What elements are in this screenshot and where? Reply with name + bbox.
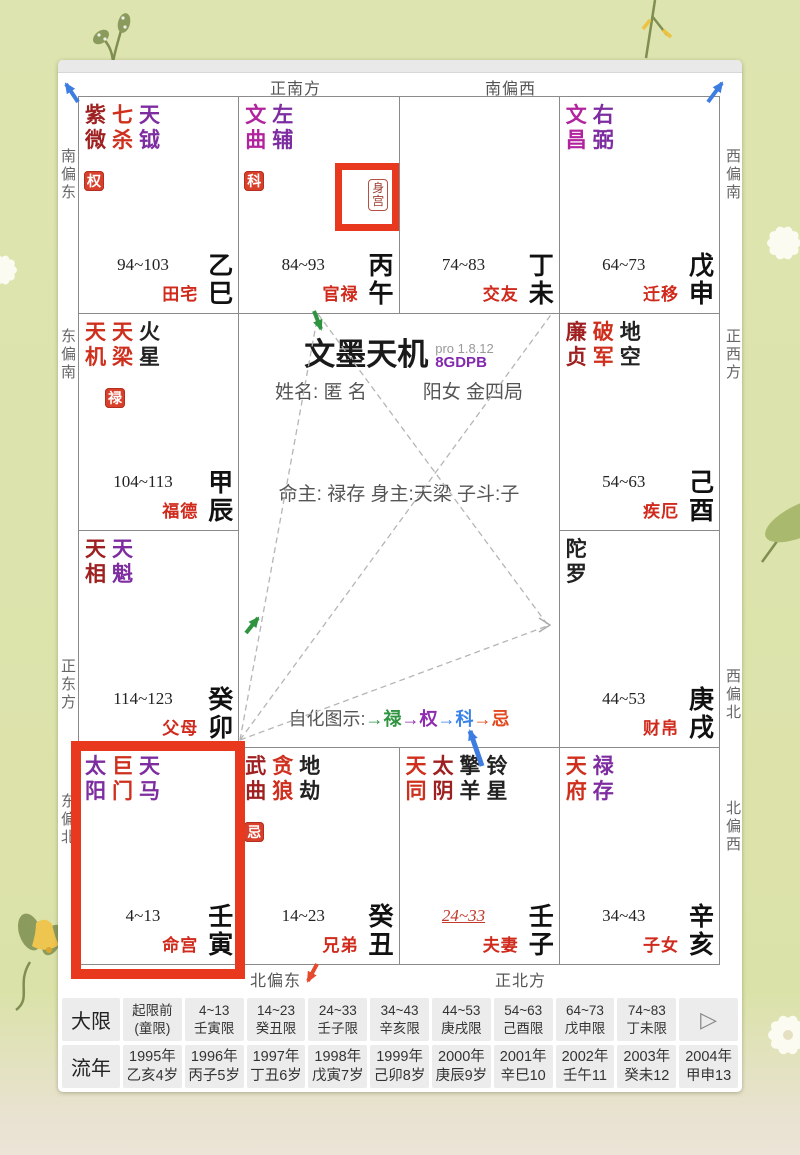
stem-branch: 壬寅	[208, 903, 233, 959]
star-list: 天相天魁	[84, 537, 134, 587]
table-cell[interactable]: 64~73戊申限	[556, 998, 615, 1041]
compass-left-2: 东偏南	[58, 328, 76, 382]
liunian-row: 流年 1995年乙亥4岁1996年丙子5岁1997年丁丑6岁1998年戊寅7岁1…	[62, 1045, 738, 1088]
palace-fude[interactable]: 天机天梁火星禄104~113甲辰福德	[79, 314, 238, 530]
arrow-red-down	[308, 964, 317, 981]
star-list: 天府禄存	[565, 754, 615, 804]
play-icon: ▷	[700, 1009, 717, 1031]
palace-name-label: 疾厄	[643, 497, 679, 522]
star-name: 天相	[84, 537, 107, 587]
table-cell[interactable]: 1999年己卯8岁	[370, 1045, 429, 1088]
daxian-header: 大限	[62, 998, 120, 1041]
table-cell[interactable]: 1997年丁丑6岁	[247, 1045, 306, 1088]
table-cell[interactable]: 74~83丁未限	[617, 998, 676, 1041]
star-list: 天机天梁火星	[84, 320, 161, 370]
star-name: 天钺	[138, 103, 161, 153]
palace-name-label: 交友	[483, 280, 519, 305]
next-limits-button[interactable]: ▷	[679, 998, 738, 1041]
star-list: 天同太阴擎羊铃星	[405, 754, 509, 804]
table-cell[interactable]: 24~33壬子限	[308, 998, 367, 1041]
table-cell[interactable]: 2002年壬午11	[556, 1045, 615, 1088]
stem-branch: 丁未	[529, 252, 554, 308]
app-edition: 8GDPB	[435, 356, 494, 370]
palace-name-label: 命宫	[162, 931, 198, 956]
star-name: 文昌	[565, 103, 588, 153]
star-name: 天同	[405, 754, 428, 804]
palace-name-label: 兄弟	[323, 931, 359, 956]
table-cell[interactable]: 1995年乙亥4岁	[123, 1045, 182, 1088]
age-range: 54~63	[564, 472, 684, 492]
legend-item: →禄	[366, 709, 402, 729]
palace-name-label: 财帛	[643, 714, 679, 739]
daxian-row: 大限 起限前(童限)4~13壬寅限14~23癸丑限24~33壬子限34~43辛亥…	[62, 998, 738, 1041]
star-name: 太阴	[432, 754, 455, 804]
stem-branch: 己酉	[689, 469, 714, 525]
table-cell[interactable]: 1996年丙子5岁	[185, 1045, 244, 1088]
app-background: { "app": { "title": "文墨天机", "version": "…	[0, 0, 800, 1155]
palace-minggong[interactable]: 太阳巨门天马4~13壬寅命宫	[79, 748, 238, 964]
palace-fumu[interactable]: 天相天魁114~123癸卯父母	[79, 531, 238, 747]
palace-name-label: 迁移	[643, 280, 679, 305]
age-range: 84~93	[243, 255, 363, 275]
liunian-header: 流年	[62, 1045, 120, 1088]
compass-left-4: 东偏北	[58, 793, 76, 847]
panel-top-strip	[58, 60, 742, 73]
star-list: 文曲左辅	[244, 103, 294, 153]
table-cell[interactable]: 2004年甲申13	[679, 1045, 738, 1088]
star-name: 太阳	[84, 754, 107, 804]
transform-badge-忌: 忌	[244, 822, 264, 842]
table-cell[interactable]: 14~23癸丑限	[247, 998, 306, 1041]
star-name: 铃星	[486, 754, 509, 804]
palace-guanlu[interactable]: 文曲左辅科身宫84~93丙午官禄	[239, 97, 398, 313]
compass-right-1: 西偏南	[723, 148, 741, 202]
star-name: 天马	[138, 754, 161, 804]
star-name: 地空	[619, 320, 642, 370]
table-cell[interactable]: 2000年庚辰9岁	[432, 1045, 491, 1088]
transform-badge-禄: 禄	[105, 388, 125, 408]
age-range: 104~113	[83, 472, 203, 492]
palace-name-label: 福德	[162, 497, 198, 522]
app-title: 文墨天机	[304, 338, 428, 372]
palace-name-label: 父母	[162, 714, 198, 739]
self-transform-legend: 自化图示:→禄→权→科→忌	[239, 705, 559, 731]
star-list: 武曲贪狼地劫	[244, 754, 321, 804]
star-name: 天机	[84, 320, 107, 370]
stem-branch: 甲辰	[208, 469, 233, 525]
star-name: 左辅	[271, 103, 294, 153]
life-body-masters: 命主: 禄存 身主:天梁 子斗:子	[239, 479, 559, 506]
table-cell[interactable]: 起限前(童限)	[123, 998, 182, 1041]
palace-name-label: 田宅	[162, 280, 198, 305]
star-name: 天魁	[111, 537, 134, 587]
palace-name-label: 子女	[643, 931, 679, 956]
palace-jie[interactable]: 廉贞破军地空54~63己酉疾厄	[560, 314, 719, 530]
legend-item: →科	[438, 709, 474, 729]
star-name: 贪狼	[271, 754, 294, 804]
star-name: 文曲	[244, 103, 267, 153]
arrow-top-left-blue	[66, 84, 78, 102]
palace-qianyi[interactable]: 文昌右弼64~73戊申迁移	[560, 97, 719, 313]
palace-name-label: 官禄	[323, 280, 359, 305]
palace-zinv[interactable]: 天府禄存34~43辛亥子女	[560, 748, 719, 964]
compass-right-4: 北偏西	[723, 800, 741, 854]
star-name: 天梁	[111, 320, 134, 370]
compass-left-1: 南偏东	[58, 148, 76, 202]
star-name: 火星	[138, 320, 161, 370]
palace-jiaoyou[interactable]: 74~83丁未交友	[400, 97, 559, 313]
transform-badge-科: 科	[244, 171, 264, 191]
star-name: 右弼	[592, 103, 615, 153]
compass-right-3: 西偏北	[723, 668, 741, 722]
age-range: 114~123	[83, 689, 203, 709]
star-list: 太阳巨门天马	[84, 754, 161, 804]
stem-branch: 癸卯	[208, 686, 233, 742]
age-range: 14~23	[243, 906, 363, 926]
palace-fuqi[interactable]: 天同太阴擎羊铃星24~33壬子夫妻	[400, 748, 559, 964]
gender-bureau: 阳女 金四局	[423, 377, 523, 404]
compass-north: 正北方	[495, 967, 546, 991]
center-info-area: 文墨天机 pro 1.8.12 8GDPB 姓名: 匿 名 阳女 金四局 命主:…	[239, 314, 559, 747]
transform-badge-权: 权	[84, 171, 104, 191]
age-range: 34~43	[564, 906, 684, 926]
stem-branch: 癸丑	[368, 903, 393, 959]
stem-branch: 戊申	[689, 252, 714, 308]
stem-branch: 辛亥	[689, 903, 714, 959]
table-cell[interactable]: 1998年戊寅7岁	[308, 1045, 367, 1088]
star-list: 廉贞破军地空	[565, 320, 642, 370]
star-name: 陀罗	[565, 537, 588, 587]
star-list: 陀罗	[565, 537, 588, 587]
table-cell[interactable]: 4~13壬寅限	[185, 998, 244, 1041]
legend-item: →忌	[474, 709, 510, 729]
star-list: 紫微七杀天钺	[84, 103, 161, 153]
table-cell[interactable]: 54~63己酉限	[494, 998, 553, 1041]
compass-north-east: 北偏东	[250, 967, 301, 991]
limits-tables: 大限 起限前(童限)4~13壬寅限14~23癸丑限24~33壬子限34~43辛亥…	[62, 998, 738, 1092]
compass-left-3: 正东方	[58, 658, 76, 712]
age-range: 44~53	[564, 689, 684, 709]
age-range: 74~83	[404, 255, 524, 275]
star-name: 禄存	[592, 754, 615, 804]
palace-name-label: 夫妻	[483, 931, 519, 956]
body-palace-label: 身宫	[368, 179, 388, 211]
palace-xiongdi[interactable]: 武曲贪狼地劫忌14~23癸丑兄弟	[239, 748, 398, 964]
star-name: 紫微	[84, 103, 107, 153]
table-cell[interactable]: 2003年癸未12	[617, 1045, 676, 1088]
palace-tianzhai[interactable]: 紫微七杀天钺权94~103乙巳田宅	[79, 97, 238, 313]
star-name: 破军	[592, 320, 615, 370]
body-palace-marker: 身宫	[335, 163, 399, 231]
stem-branch: 庚戌	[689, 686, 714, 742]
star-name: 天府	[565, 754, 588, 804]
compass-right-2: 正西方	[723, 328, 741, 382]
star-name: 地劫	[298, 754, 321, 804]
star-name: 擎羊	[459, 754, 482, 804]
star-list: 文昌右弼	[565, 103, 615, 153]
chart-panel: 正南方 南偏西 北偏东 正北方 南偏东 东偏南 正东方 东偏北 西偏南 正西方 …	[58, 60, 742, 1092]
table-cell[interactable]: 34~43辛亥限	[370, 998, 429, 1041]
palace-grid: 紫微七杀天钺权94~103乙巳田宅 文曲左辅科身宫84~93丙午官禄 74~83…	[78, 96, 720, 965]
palace-caibo[interactable]: 陀罗44~53庚戌财帛	[560, 531, 719, 747]
age-range: 64~73	[564, 255, 684, 275]
star-name: 廉贞	[565, 320, 588, 370]
stem-branch: 壬子	[529, 903, 554, 959]
table-cell[interactable]: 2001年辛巳10	[494, 1045, 553, 1088]
age-range: 4~13	[83, 906, 203, 926]
star-name: 巨门	[111, 754, 134, 804]
age-range: 94~103	[83, 255, 203, 275]
stem-branch: 乙巳	[208, 252, 233, 308]
star-name: 武曲	[244, 754, 267, 804]
age-range: 24~33	[404, 906, 524, 926]
star-name: 七杀	[111, 103, 134, 153]
table-cell[interactable]: 44~53庚戌限	[432, 998, 491, 1041]
stem-branch: 丙午	[368, 252, 393, 308]
legend-item: →权	[402, 709, 438, 729]
person-name: 姓名: 匿 名	[275, 377, 367, 404]
